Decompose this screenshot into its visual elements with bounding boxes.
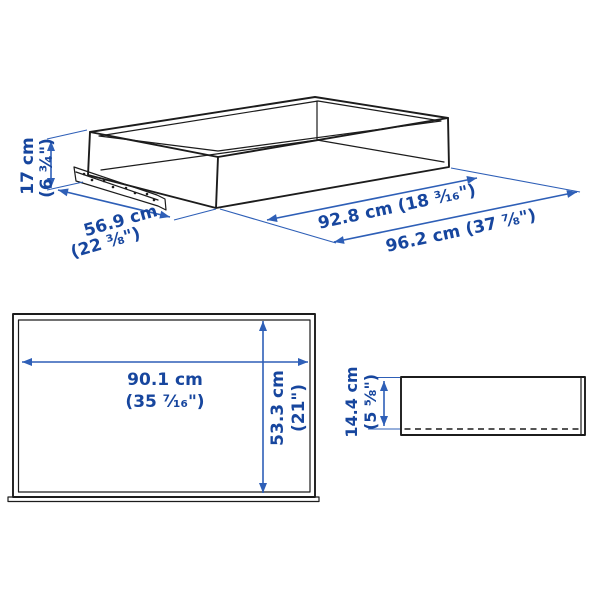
height-label-inch: (6 ¾") <box>37 138 57 198</box>
front-width-label-inch: (35 ⁷⁄₁₆") <box>125 392 204 412</box>
depth-ext-right <box>174 209 216 220</box>
rail-fold-line <box>76 172 158 200</box>
front-height-label-cm: 53.3 cm <box>268 370 288 446</box>
front-view-labels: 90.1 cm (35 ⁷⁄₁₆") 53.3 cm (21") <box>125 370 309 446</box>
side-height-label-cm: 14.4 cm <box>342 366 361 437</box>
dimension-diagram: 17 cm (6 ¾") 56.9 cm (22 ⅜") 92.8 cm (18… <box>0 0 600 600</box>
front-width-label-cm: 90.1 cm <box>127 370 203 390</box>
side-panel-outline <box>401 377 585 435</box>
height-label-cm: 17 cm <box>18 137 38 194</box>
drawer-interior-lines <box>101 101 444 170</box>
front-view-drawing: 90.1 cm (35 ⁷⁄₁₆") 53.3 cm (21") <box>8 314 319 502</box>
drawer-isometric-drawing: 17 cm (6 ¾") 56.9 cm (22 ⅜") 92.8 cm (18… <box>18 97 580 263</box>
diagram-svg: 17 cm (6 ¾") 56.9 cm (22 ⅜") 92.8 cm (18… <box>0 0 600 600</box>
side-view-drawing: 14.4 cm (5 ⅝") <box>342 366 585 437</box>
front-height-label-inch: (21") <box>289 384 309 432</box>
side-height-label-inch: (5 ⅝") <box>361 374 380 430</box>
iso-labels: 17 cm (6 ¾") 56.9 cm (22 ⅜") 92.8 cm (18… <box>18 137 538 262</box>
height-ext-top <box>47 130 87 139</box>
side-view-labels: 14.4 cm (5 ⅝") <box>342 366 380 437</box>
